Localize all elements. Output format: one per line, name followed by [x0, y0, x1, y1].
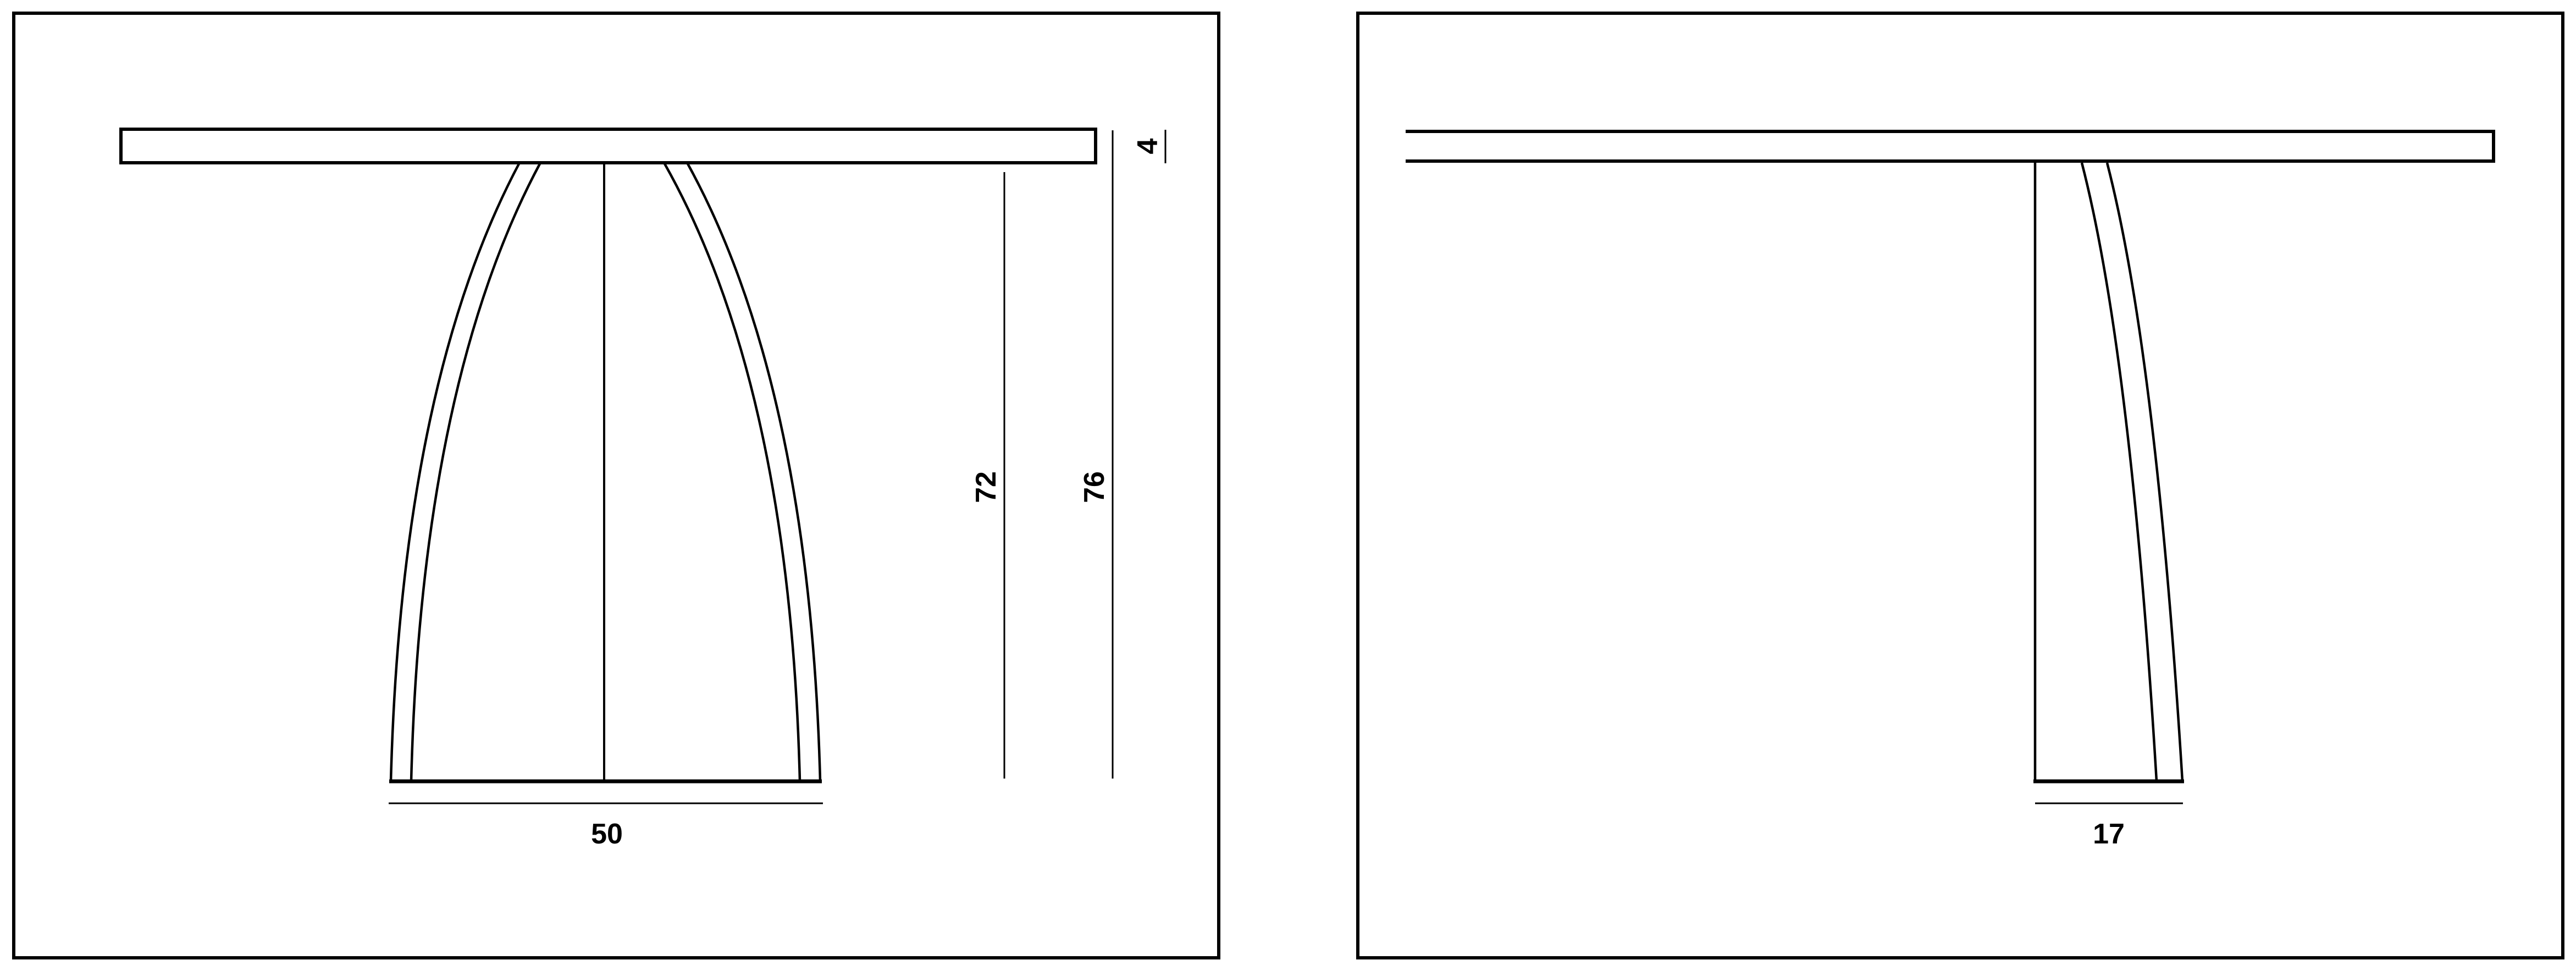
dim-label-leg-depth: 17 [2093, 818, 2125, 850]
dim-label-base-width: 50 [591, 818, 623, 850]
technical-drawing-svg: 72 76 4 50 17 [0, 0, 2576, 971]
dim-label-top-thickness: 4 [1132, 138, 1164, 154]
front-elevation-panel: 72 76 4 50 [14, 13, 1219, 958]
front-pedestal-left-outer-curve [391, 163, 519, 781]
front-pedestal-right-outer-curve [687, 163, 820, 781]
side-elevation-panel: 17 [1358, 13, 2563, 958]
front-tabletop [121, 129, 1096, 163]
side-panel-border [1358, 13, 2563, 958]
dim-label-total-height: 76 [1079, 471, 1110, 503]
drawing-sheet: 72 76 4 50 17 [0, 0, 2576, 971]
dim-label-underside-height: 72 [970, 471, 1002, 503]
front-pedestal-right-inner-curve [664, 163, 800, 781]
side-tabletop [1406, 130, 2494, 163]
front-pedestal-left-inner-curve [411, 163, 540, 781]
side-leg-outer-curve [2107, 163, 2182, 781]
side-leg-inner-curve [2082, 163, 2157, 781]
